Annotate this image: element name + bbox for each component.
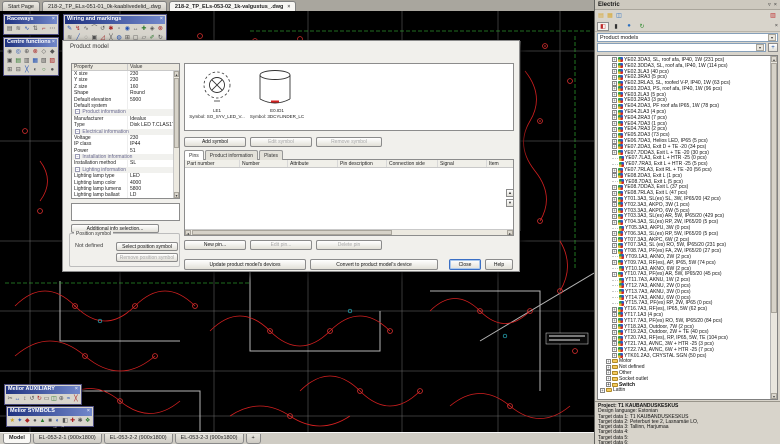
auto-hide-pin-icon[interactable]: ▿ — [768, 2, 771, 8]
document-tab-label: 218-2_TP_ELs-051-01_0k-kaablivedelid_.dw… — [48, 4, 161, 10]
diamond-symbol-icon: ◆ — [25, 418, 30, 424]
expand-icon[interactable]: + — [612, 237, 617, 242]
expand-icon[interactable]: + — [612, 133, 617, 138]
product-model-icon — [618, 92, 623, 97]
close-icon[interactable]: × — [775, 23, 778, 29]
centre-tool-icon-7[interactable]: ▣ — [6, 57, 14, 65]
refresh-tab-icon[interactable]: ↻ — [636, 22, 648, 31]
conduit-tool-icon[interactable]: ∿ — [23, 25, 31, 33]
chevron-down-icon[interactable]: ▾ — [756, 44, 764, 51]
wave-tool-icon: ≈ — [67, 396, 70, 402]
toolbar-row: ✎↯∿⌒↺✱▫◉↔✚◈⊗ — [65, 24, 165, 33]
expand-icon[interactable]: + — [612, 231, 617, 236]
scrollbar-thumb[interactable] — [174, 78, 179, 148]
expand-icon[interactable]: + — [612, 75, 617, 80]
centre-tool-icon-2: ◎ — [16, 49, 21, 55]
project-info-panel: Project: T1 KAUBANDUSKESKUSDesign langua… — [595, 401, 780, 444]
expand-icon[interactable]: + — [612, 249, 617, 254]
collapse-icon[interactable]: − — [75, 109, 80, 114]
melior-symbols-toolbar[interactable]: Melior SYMBOLS× ★✦◆●▲■◐◧✚✱❖ — [6, 406, 94, 427]
centre-tool-icon-11: ▧ — [41, 58, 47, 64]
product-model-icon — [619, 295, 624, 300]
pins-column-header-0[interactable]: Part number — [185, 160, 240, 167]
collapse-icon[interactable]: − — [75, 129, 80, 134]
lightning-wire-icon: ↯ — [75, 26, 80, 32]
product-model-icon — [618, 191, 623, 196]
ornament-symbol-icon: ❖ — [85, 418, 90, 424]
centre-tool-icon-1[interactable]: ◉ — [6, 48, 14, 56]
rotate-ccw-icon: ↺ — [30, 396, 35, 402]
dialog-tab-0[interactable]: Pins — [184, 150, 204, 160]
tree-line — [612, 291, 618, 292]
layout-tab-3[interactable]: EL-053-2-3 (900x1800) — [175, 434, 244, 444]
convert-to-product-model-device-button[interactable]: Convert to product model's device — [310, 259, 438, 270]
product-model-icon — [618, 208, 623, 213]
centre-tool-icon-17[interactable]: ○ — [40, 66, 48, 74]
product-model-icon — [618, 202, 623, 207]
scroll-up-icon[interactable]: ▴ — [174, 71, 179, 77]
close-button[interactable]: Close — [449, 259, 481, 270]
expand-icon[interactable]: + — [612, 336, 617, 341]
mirror-tool-icon: ◫ — [51, 396, 57, 402]
tree-line — [612, 158, 618, 159]
close-icon[interactable]: × — [52, 17, 55, 23]
dialog-tab-1[interactable]: Product information — [205, 150, 258, 160]
triangle-symbol-icon[interactable]: ▲ — [39, 417, 46, 425]
centre-tool-icon-8: ▤ — [15, 58, 21, 64]
arrow-icon[interactable]: → — [52, 424, 58, 430]
application-window: Start Page218-2_TP_ELs-051-01_0k-kaabliv… — [0, 0, 780, 444]
lightning-wire-icon[interactable]: ↯ — [74, 25, 81, 33]
expand-icon[interactable]: + — [612, 347, 617, 352]
centre-tool-icon-4: ⊗ — [33, 49, 38, 55]
tree-line — [612, 268, 618, 269]
rotate-cw-icon[interactable]: ↻ — [36, 395, 42, 403]
centre-tool-icon-14: ⊟ — [16, 67, 21, 73]
expand-icon[interactable]: + — [612, 144, 617, 149]
centre-tool-icon-3: ⊕ — [24, 49, 29, 55]
expand-icon[interactable]: + — [612, 185, 617, 190]
expand-icon[interactable]: + — [612, 208, 617, 213]
centre-tool-icon-16: ◐ — [33, 67, 37, 73]
spark-symbol-icon[interactable]: ✦ — [17, 417, 24, 425]
expand-icon[interactable]: + — [612, 260, 617, 265]
expand-icon[interactable]: + — [612, 272, 617, 277]
add-tool-icon[interactable]: ⊕ — [58, 395, 64, 403]
remove-symbol-button[interactable]: Remove symbol — [316, 137, 382, 147]
centre-tool-icon-12[interactable]: ▨ — [49, 57, 57, 65]
folder-icon — [612, 377, 618, 381]
world-tab-icon[interactable]: ● — [623, 22, 635, 31]
world-tab-icon: ● — [627, 23, 631, 29]
raceway-options-icon: ⋯ — [49, 26, 55, 32]
product-models-tab-icon: ◧ — [600, 23, 606, 30]
node-icon[interactable]: ◉ — [124, 25, 131, 33]
centre-tool-icon-6[interactable]: ◆ — [49, 48, 57, 56]
tree-line — [612, 297, 618, 298]
expand-icon[interactable]: + — [612, 110, 617, 115]
expand-icon[interactable]: + — [612, 330, 617, 335]
symbol-1-label: LE1Symbol: SO_SYV_LED_V... — [187, 108, 247, 119]
product-model-icon — [619, 301, 624, 306]
cut-tool-icon[interactable]: ✂ — [7, 395, 13, 403]
add-symbol-button[interactable]: Add symbol — [184, 137, 246, 147]
product-model-icon — [618, 249, 623, 254]
tree-scrollbar[interactable]: ▴ ▾ — [770, 56, 777, 399]
document-tab-2[interactable]: 218-2_TP_ELs-053-02_1k-valgustus_.dwg× — [169, 1, 296, 11]
delete-wire-icon: ⊗ — [158, 26, 163, 32]
centre-tool-icon-17: ○ — [42, 67, 46, 73]
expand-icon[interactable]: + — [612, 191, 617, 196]
expand-icon[interactable]: + — [612, 220, 617, 225]
sync-project-icon[interactable]: ◫ — [615, 12, 623, 20]
melior-auxiliary-toolbar[interactable]: Melior AUXILIARY× ✂↔↕↺↻▭◫⊕≈╳ — [4, 384, 82, 405]
toolbar-row: ⊞⊟╳◐○● — [5, 65, 57, 74]
filter-combo[interactable]: ▾ — [597, 43, 766, 52]
asterisk-symbol-icon[interactable]: ✱ — [77, 417, 84, 425]
delete-wire-icon[interactable]: ⊗ — [157, 25, 164, 33]
dot-symbol-icon[interactable]: ● — [32, 417, 39, 425]
expand-icon[interactable]: + — [612, 104, 617, 109]
symbol-preview-area: LE1Symbol: SO_SYV_LED_V... E0.ID1Symbol:… — [184, 63, 514, 131]
marking-icon: ◈ — [150, 26, 155, 32]
cut-tool-icon: ✂ — [8, 396, 13, 402]
expand-icon[interactable]: + — [612, 197, 617, 202]
tree-line — [612, 256, 618, 257]
expand-icon[interactable]: + — [612, 139, 617, 144]
draw-wire-icon[interactable]: ✎ — [66, 25, 73, 33]
product-model-icon — [618, 127, 623, 132]
product-model-icon — [618, 307, 623, 312]
centre-tool-icon-8[interactable]: ▤ — [15, 57, 23, 65]
expand-icon[interactable]: + — [612, 150, 617, 155]
centre-tool-icon-18[interactable]: ● — [49, 66, 57, 74]
pins-column-header-1[interactable]: Number — [240, 160, 288, 167]
box-symbol-icon[interactable]: ▫ — [116, 25, 123, 33]
joint-tool-icon: ⌐ — [42, 26, 46, 32]
wave-tool-icon[interactable]: ≈ — [65, 395, 71, 403]
dialog-tab-2[interactable]: Plates — [259, 150, 283, 160]
rect-tool-icon: ▭ — [44, 396, 50, 402]
edit-pin-button[interactable]: Edit pin... — [250, 240, 312, 250]
cylinder-symbol-icon[interactable] — [253, 67, 297, 109]
pins-column-header-6[interactable]: Item — [487, 160, 514, 167]
layout-tab-bar: ModelEL-053-2-1 (900x1800)EL-053-2-2 (90… — [0, 432, 594, 444]
expand-icon[interactable]: + — [612, 341, 617, 346]
move-v-icon: ↕ — [23, 396, 26, 402]
toolbar-row: ◉◎⊕⊗◇◆ — [5, 47, 57, 56]
layout-tab-1[interactable]: EL-053-2-1 (900x1800) — [33, 434, 102, 444]
close-icon[interactable]: × — [87, 409, 90, 415]
help-button[interactable]: Help — [485, 259, 513, 270]
plus-symbol-icon[interactable]: ✚ — [69, 417, 76, 425]
product-model-icon — [618, 347, 623, 352]
expand-icon[interactable]: + — [612, 214, 617, 219]
joint-tool-icon[interactable]: ⌐ — [40, 25, 48, 33]
scroll-up-icon[interactable]: ▴ — [771, 56, 777, 62]
move-h-icon[interactable]: ↔ — [14, 395, 20, 403]
product-model-icon — [618, 98, 623, 103]
erase-tool-icon: ╳ — [74, 396, 78, 402]
undo-wire-icon[interactable]: ↺ — [99, 25, 106, 33]
draw-wire-icon: ✎ — [67, 26, 72, 32]
layout-tab-4[interactable]: + — [246, 434, 261, 444]
category-combo[interactable]: Product models ▾ — [597, 33, 778, 42]
electric-panel-toolbar: ▤▦◫▥ — [595, 10, 780, 21]
move-pin-up-button[interactable]: ▲ — [506, 189, 514, 197]
product-model-icon — [618, 272, 623, 277]
scrollbar-thumb[interactable] — [192, 230, 392, 235]
expand-icon[interactable]: + — [606, 382, 611, 387]
property-value: LD — [128, 192, 173, 198]
chevron-down-icon[interactable]: ▾ — [768, 34, 776, 41]
expand-icon[interactable]: + — [612, 202, 617, 207]
arc-wire-icon[interactable]: ⌒ — [91, 25, 98, 33]
centre-tool-icon-5: ◇ — [41, 49, 46, 55]
product-models-tab-icon[interactable]: ◧ — [597, 22, 609, 31]
product-model-icon — [618, 237, 623, 242]
add-product-model-button[interactable]: + — [768, 43, 778, 52]
junction-icon[interactable]: ✱ — [107, 25, 114, 33]
move-pin-down-button[interactable]: ▼ — [506, 199, 514, 207]
erase-tool-icon[interactable]: ╳ — [73, 395, 79, 403]
expand-icon[interactable]: + — [612, 127, 617, 132]
tree-line — [612, 181, 618, 182]
expand-icon[interactable]: + — [612, 69, 617, 74]
centre-tool-icon-9: ▥ — [24, 58, 30, 64]
collapse-icon[interactable]: − — [75, 154, 80, 159]
update-product-models-devices-button[interactable]: Update product model's devices — [184, 259, 306, 270]
star-symbol-icon: ★ — [10, 418, 15, 424]
expand-icon[interactable]: + — [612, 243, 617, 248]
expand-icon[interactable]: + — [612, 307, 617, 312]
star-symbol-icon[interactable]: ★ — [9, 417, 16, 425]
new-project-icon: ▤ — [598, 13, 604, 19]
product-model-icon — [619, 254, 624, 259]
delete-pin-button[interactable]: Delete pin — [316, 240, 382, 250]
add-wire-icon[interactable]: ✚ — [140, 25, 147, 33]
toolbar-row: ▣▤▥▦▧▨ — [5, 56, 57, 65]
property-column-header[interactable]: Property — [72, 64, 128, 70]
product-model-icon — [618, 139, 623, 144]
edit-symbol-button[interactable]: Edit symbol — [250, 137, 312, 147]
expand-icon[interactable]: + — [612, 318, 617, 323]
document-tab-label: Start Page — [8, 4, 34, 10]
close-icon[interactable]: × — [774, 2, 777, 8]
scroll-left-icon[interactable]: ◂ — [185, 230, 191, 235]
centre-tool-icon-5[interactable]: ◇ — [40, 48, 48, 56]
product-model-icon — [618, 104, 623, 109]
move-v-icon[interactable]: ↕ — [22, 395, 28, 403]
melior-symbols-title: Melior SYMBOLS — [10, 409, 55, 415]
refresh-tab-icon: ↻ — [639, 23, 644, 30]
expand-icon[interactable]: + — [612, 92, 617, 97]
product-model-icon — [619, 289, 624, 294]
centre-tool-icon-15[interactable]: ╳ — [23, 66, 31, 74]
product-model-icon — [618, 231, 623, 236]
close-icon[interactable]: × — [75, 387, 78, 393]
layout-tab-2[interactable]: EL-053-2-2 (900x1800) — [104, 434, 173, 444]
marking-icon[interactable]: ◈ — [149, 25, 156, 33]
product-model-icon — [618, 185, 623, 190]
centre-tool-icon-10: ▦ — [32, 58, 38, 64]
pins-column-header-3[interactable]: Pin description — [338, 160, 387, 167]
centre-tool-icon-7: ▣ — [7, 58, 13, 64]
conduit-tool-icon: ∿ — [24, 26, 29, 32]
electric-panel-title: Electric — [598, 2, 620, 8]
centre-tool-icon-1: ◉ — [7, 49, 12, 55]
symbol-2-label: E0.ID1Symbol: 3DCYLINDER_LC — [247, 108, 307, 119]
position-symbol-group: Position symbol Not defined Select posit… — [69, 233, 180, 267]
product-model-icon — [619, 266, 624, 271]
led-symbol-icon[interactable] — [197, 68, 237, 106]
product-model-dialog: Product model Property Value X size230Y … — [62, 40, 520, 272]
pins-column-header-5[interactable]: Signal — [438, 160, 487, 167]
value-column-header[interactable]: Value — [128, 64, 179, 70]
scrollbar-thumb[interactable] — [771, 63, 777, 313]
expand-icon[interactable]: + — [612, 98, 617, 103]
product-model-icon — [618, 336, 623, 341]
cable-icon: ∿ — [84, 26, 89, 32]
rotate-ccw-icon[interactable]: ↺ — [29, 395, 35, 403]
asterisk-symbol-icon: ✱ — [78, 418, 83, 424]
document-tab-0[interactable]: Start Page — [2, 1, 40, 11]
centre-tool-icon-13[interactable]: ⊞ — [6, 66, 14, 74]
pins-table[interactable]: Part numberNumberAttributePin descriptio… — [184, 159, 514, 236]
raceways-toolbar[interactable]: Raceways× ▤≋∿⇅⌐⋯ — [3, 14, 59, 35]
tree-folder-item[interactable]: +Lattin — [598, 387, 770, 393]
centre-tool-icon-4[interactable]: ⊗ — [32, 48, 40, 56]
devices-tab-icon[interactable]: ▮ — [610, 22, 622, 31]
expand-icon[interactable]: + — [612, 324, 617, 329]
cable-icon[interactable]: ∿ — [83, 25, 90, 33]
centre-tool-icon-16[interactable]: ◐ — [32, 66, 40, 74]
raceway-options-icon[interactable]: ⋯ — [49, 25, 57, 33]
pins-column-header-4[interactable]: Connection side — [387, 160, 438, 167]
position-symbol-label: Position symbol — [74, 231, 113, 237]
pins-column-header-2[interactable]: Attribute — [288, 160, 338, 167]
mirror-tool-icon[interactable]: ◫ — [51, 395, 57, 403]
new-project-icon[interactable]: ▤ — [597, 12, 605, 20]
folder-icon — [612, 371, 618, 375]
centre-tool-icon-11[interactable]: ▧ — [40, 57, 48, 65]
expand-icon[interactable]: + — [612, 312, 617, 317]
product-model-icon — [619, 156, 624, 161]
product-model-icon — [618, 57, 623, 62]
product-model-icon — [618, 220, 623, 225]
open-project-icon[interactable]: ▦ — [606, 12, 614, 20]
centre-tool-icon-3[interactable]: ⊕ — [23, 48, 31, 56]
expand-icon[interactable]: + — [612, 57, 617, 62]
product-model-icon — [618, 312, 623, 317]
document-tab-1[interactable]: 218-2_TP_ELs-051-01_0k-kaablivedelid_.dw… — [42, 1, 167, 11]
pins-table-hscrollbar[interactable]: ◂ ▸ — [185, 229, 513, 235]
remove-position-symbol-button[interactable]: Remove position symbol — [116, 253, 178, 262]
product-model-icon — [619, 283, 624, 288]
rect-tool-icon[interactable]: ▭ — [43, 395, 49, 403]
trunking-tool-icon: ≋ — [16, 26, 21, 32]
expand-icon[interactable]: + — [606, 365, 611, 370]
spark-symbol-icon: ✦ — [17, 418, 22, 424]
scroll-right-icon[interactable]: ▸ — [507, 230, 513, 235]
product-model-icon — [618, 115, 623, 120]
close-icon[interactable]: × — [61, 424, 65, 430]
expand-icon[interactable]: + — [612, 121, 617, 126]
raceways-toolbar-title: Raceways — [7, 17, 34, 23]
product-model-icon — [618, 341, 623, 346]
product-model-icon — [618, 63, 623, 68]
expand-icon[interactable]: + — [612, 81, 617, 86]
expand-icon[interactable]: + — [612, 173, 617, 178]
close-icon[interactable]: × — [52, 40, 55, 46]
centre-functions-toolbar[interactable]: Centre functions× ◉◎⊕⊗◇◆▣▤▥▦▧▨⊞⊟╳◐○● — [3, 37, 59, 76]
close-icon[interactable]: × — [160, 17, 163, 23]
product-model-icon — [618, 69, 623, 74]
close-project-icon[interactable]: ▥ — [769, 12, 777, 20]
new-pin-button[interactable]: New pin... — [184, 240, 246, 250]
select-position-symbol-button[interactable]: Select position symbol — [116, 242, 178, 251]
product-model-icon — [619, 162, 624, 167]
product-model-icon — [618, 144, 623, 149]
expand-icon[interactable]: + — [606, 359, 611, 364]
expand-icon[interactable]: + — [612, 353, 617, 358]
centre-tool-icon-18: ● — [50, 67, 54, 73]
scroll-down-icon[interactable]: ▾ — [174, 192, 179, 198]
layout-tab-0[interactable]: Model — [3, 434, 31, 444]
docked-mini-toolbar: →× — [52, 424, 65, 430]
expand-icon[interactable]: + — [600, 388, 605, 393]
close-icon[interactable]: × — [287, 4, 290, 10]
collapse-icon[interactable]: − — [75, 167, 80, 172]
centre-tool-icon-2[interactable]: ◎ — [15, 48, 23, 56]
devices-tab-icon: ▮ — [614, 23, 617, 30]
centre-tool-icon-9[interactable]: ▥ — [23, 57, 31, 65]
tree-line — [612, 228, 618, 229]
cable-tray-tool-icon[interactable]: ▤ — [6, 25, 14, 33]
stretch-wire-icon[interactable]: ↔ — [132, 25, 139, 33]
melior-auxiliary-title: Melior AUXILIARY — [8, 387, 55, 393]
centre-tool-icon-12: ▨ — [49, 58, 55, 64]
stretch-wire-icon: ↔ — [133, 26, 139, 32]
document-tab-bar: Start Page218-2_TP_ELs-051-01_0k-kaabliv… — [0, 0, 594, 11]
diamond-symbol-icon[interactable]: ◆ — [24, 417, 31, 425]
expand-icon[interactable]: + — [612, 63, 617, 68]
product-model-icon — [618, 243, 623, 248]
property-row[interactable]: Lighting lamp ballastLD — [72, 192, 173, 198]
product-model-icon — [618, 150, 623, 155]
trunking-tool-icon[interactable]: ≋ — [15, 25, 23, 33]
ornament-symbol-icon[interactable]: ❖ — [84, 417, 91, 425]
electric-panel-tabs: ◧▮●↻× — [595, 21, 780, 32]
expand-icon[interactable]: + — [612, 168, 617, 173]
expand-icon[interactable]: + — [606, 370, 611, 375]
dot-symbol-icon: ● — [33, 418, 37, 424]
add-tool-icon: ⊕ — [59, 396, 64, 402]
tree-item-label: Lattin — [613, 387, 625, 393]
expand-icon[interactable]: + — [606, 376, 611, 381]
expand-icon[interactable]: + — [612, 86, 617, 91]
tree-line — [612, 303, 618, 304]
scroll-down-icon[interactable]: ▾ — [771, 393, 777, 399]
product-model-icon — [618, 110, 623, 115]
expand-icon[interactable]: + — [612, 115, 617, 120]
centre-tool-icon-10[interactable]: ▦ — [32, 57, 40, 65]
product-model-icon — [618, 121, 623, 126]
riser-tool-icon[interactable]: ⇅ — [32, 25, 40, 33]
property-grid-scrollbar[interactable]: ▴ ▾ — [173, 71, 179, 198]
centre-tool-icon-14[interactable]: ⊟ — [15, 66, 23, 74]
folder-icon — [612, 365, 618, 369]
